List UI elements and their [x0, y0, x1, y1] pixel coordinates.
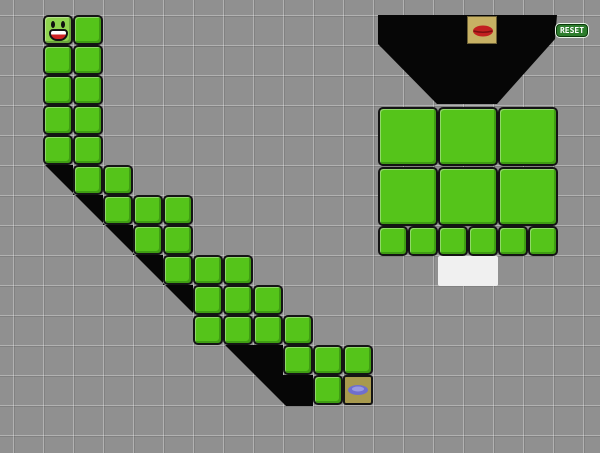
large-green-block[interactable] — [438, 167, 498, 226]
green-block[interactable] — [43, 75, 73, 105]
lips-icon — [468, 17, 498, 45]
green-block[interactable] — [43, 135, 73, 165]
green-block[interactable] — [223, 315, 253, 345]
green-block[interactable] — [343, 345, 373, 375]
small-green-block[interactable] — [468, 226, 498, 256]
exit-white-block — [438, 256, 498, 286]
green-block[interactable] — [133, 225, 163, 255]
green-block[interactable] — [283, 345, 313, 375]
green-block[interactable] — [43, 45, 73, 75]
green-block[interactable] — [73, 135, 103, 165]
small-green-block[interactable] — [498, 226, 528, 256]
green-block[interactable] — [313, 345, 343, 375]
smiley-mouth — [49, 29, 68, 41]
small-green-block[interactable] — [528, 226, 558, 256]
large-green-block[interactable] — [378, 107, 438, 166]
green-block[interactable] — [133, 195, 163, 225]
reset-button[interactable]: RESET — [556, 24, 588, 37]
smiley-block[interactable] — [43, 15, 73, 45]
green-block[interactable] — [43, 105, 73, 135]
green-block[interactable] — [223, 285, 253, 315]
lips-target-tile — [467, 16, 497, 44]
green-block[interactable] — [223, 255, 253, 285]
green-block[interactable] — [73, 45, 103, 75]
green-block[interactable] — [73, 165, 103, 195]
green-block[interactable] — [163, 255, 193, 285]
green-block[interactable] — [253, 285, 283, 315]
small-green-block[interactable] — [408, 226, 438, 256]
green-block[interactable] — [193, 255, 223, 285]
large-green-block[interactable] — [498, 167, 558, 226]
large-green-block[interactable] — [498, 107, 558, 166]
green-block[interactable] — [313, 375, 343, 405]
small-green-block[interactable] — [378, 226, 408, 256]
green-block[interactable] — [283, 315, 313, 345]
green-block[interactable] — [103, 195, 133, 225]
green-block[interactable] — [73, 75, 103, 105]
green-block[interactable] — [103, 165, 133, 195]
smiley-left-eye — [51, 21, 55, 28]
large-green-block[interactable] — [438, 107, 498, 166]
green-block[interactable] — [163, 225, 193, 255]
green-block[interactable] — [73, 105, 103, 135]
green-block[interactable] — [253, 315, 283, 345]
green-block[interactable] — [163, 195, 193, 225]
green-block[interactable] — [193, 285, 223, 315]
small-green-block[interactable] — [438, 226, 468, 256]
game-board: RESET — [0, 0, 600, 453]
oval-icon — [345, 377, 371, 403]
green-block[interactable] — [73, 15, 103, 45]
large-green-block[interactable] — [378, 167, 438, 226]
oval-target-tile — [343, 375, 373, 405]
green-block[interactable] — [193, 315, 223, 345]
smiley-right-eye — [61, 21, 65, 28]
